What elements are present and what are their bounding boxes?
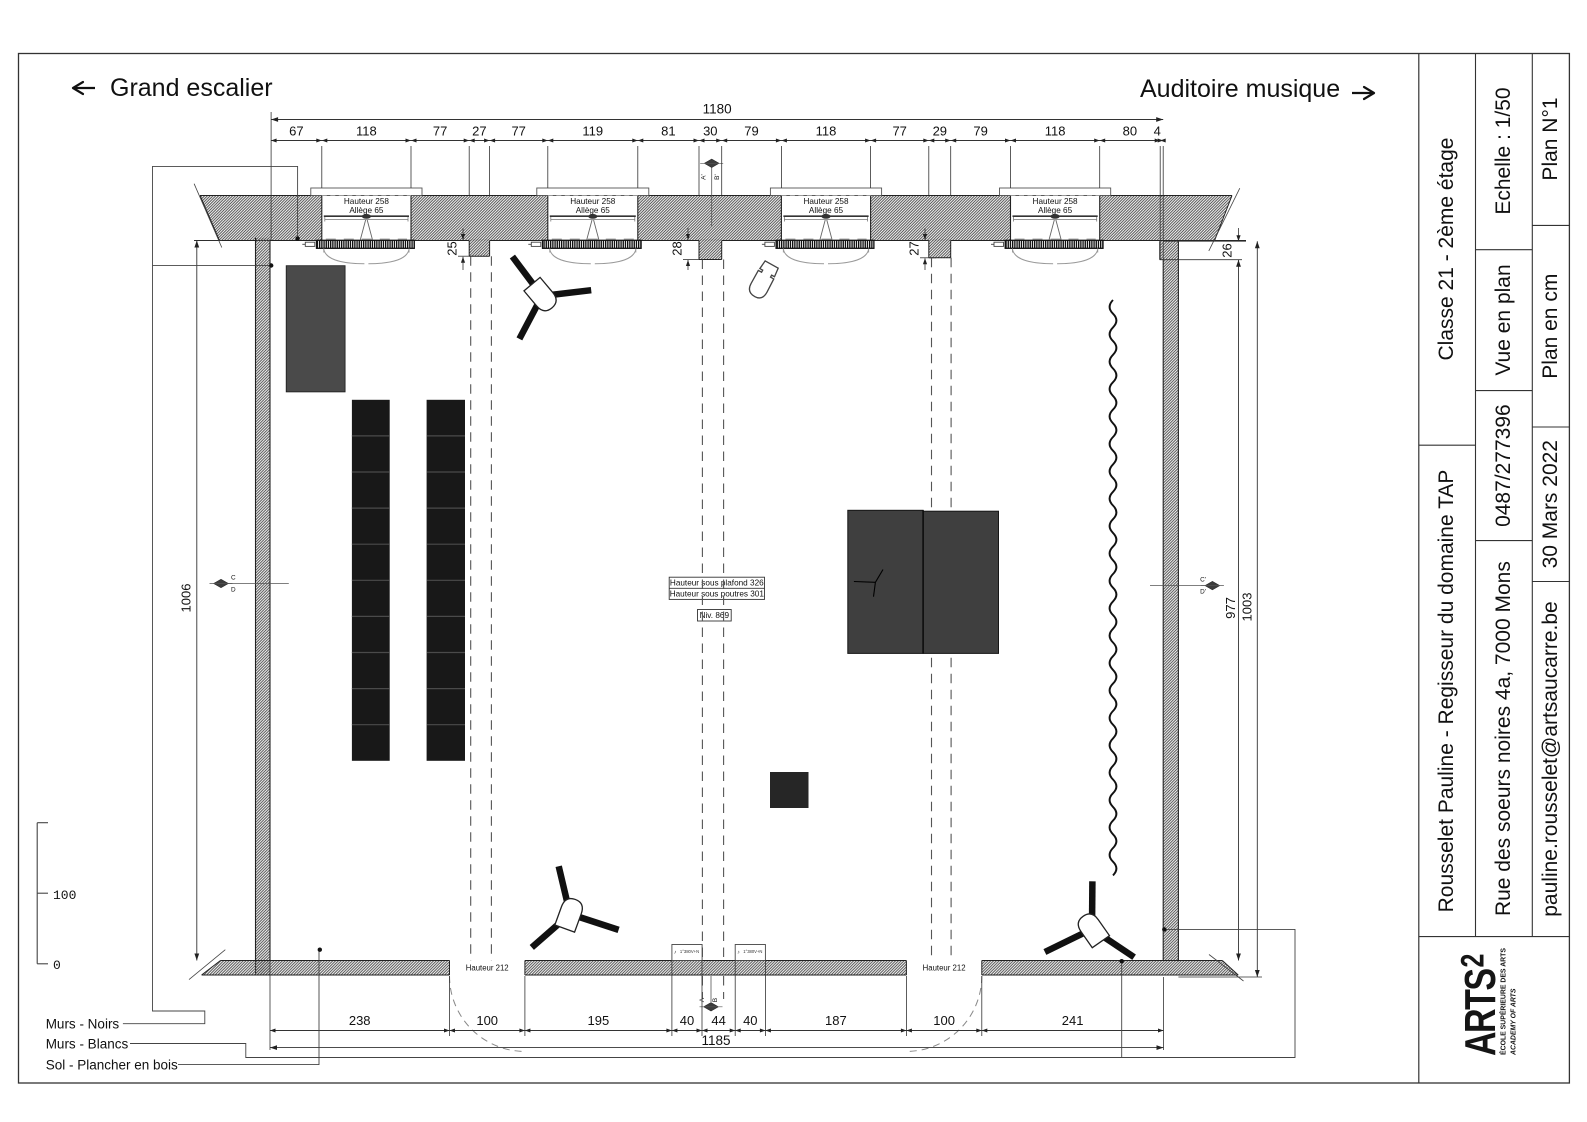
svg-text:Rue des soeurs noires 4a, 7000: Rue des soeurs noires 4a, 7000 Mons: [1492, 561, 1515, 916]
svg-text:Hauteur 212: Hauteur 212: [923, 964, 966, 973]
svg-text:1180: 1180: [703, 102, 732, 117]
svg-text:118: 118: [816, 124, 837, 139]
svg-text:118: 118: [1045, 124, 1066, 139]
svg-text:2: 2: [1456, 954, 1492, 968]
svg-text:Murs - Blancs: Murs - Blancs: [46, 1037, 129, 1052]
svg-text:Rousselet Pauline - Regisseur: Rousselet Pauline - Regisseur du domaine…: [1435, 470, 1458, 913]
svg-text:977: 977: [1223, 597, 1238, 619]
svg-text:ÉCOLE SUPÉRIEURE DES ARTS: ÉCOLE SUPÉRIEURE DES ARTS: [1499, 948, 1508, 1055]
svg-text:1006: 1006: [178, 584, 193, 613]
svg-text:1185: 1185: [701, 1033, 730, 1048]
svg-text:pauline.rousselet@artsaucarre.: pauline.rousselet@artsaucarre.be: [1539, 601, 1562, 917]
svg-text:100: 100: [476, 1013, 498, 1028]
svg-text:Plan en cm: Plan en cm: [1539, 274, 1562, 379]
svg-text:Sol - Plancher en bois: Sol - Plancher en bois: [46, 1058, 178, 1073]
svg-text:77: 77: [892, 124, 906, 139]
svg-text:25: 25: [445, 241, 460, 255]
svg-text:1°380V+N: 1°380V+N: [680, 949, 699, 954]
svg-text:B': B': [714, 174, 721, 180]
svg-text:4: 4: [1154, 124, 1161, 139]
svg-text:Hauteur 258: Hauteur 258: [344, 197, 390, 206]
svg-text:77: 77: [511, 124, 525, 139]
svg-text:80: 80: [1123, 124, 1137, 139]
svg-text:C': C': [1200, 577, 1206, 584]
svg-text:28: 28: [670, 241, 685, 255]
svg-text:30 Mars 2022: 30 Mars 2022: [1539, 440, 1562, 568]
svg-text:238: 238: [349, 1013, 371, 1028]
svg-text:30: 30: [703, 124, 717, 139]
svg-text:79: 79: [973, 124, 987, 139]
svg-text:26: 26: [1220, 243, 1235, 257]
svg-text:ARTS: ARTS: [1457, 969, 1505, 1056]
svg-text:Grand escalier: Grand escalier: [110, 74, 273, 102]
svg-text:40: 40: [743, 1013, 757, 1028]
svg-text:C: C: [231, 575, 236, 582]
svg-text:Vue en plan: Vue en plan: [1492, 264, 1515, 375]
svg-text:ACADEMY OF ARTS: ACADEMY OF ARTS: [1511, 988, 1518, 1056]
svg-text:29: 29: [933, 124, 947, 139]
svg-text:A: A: [699, 997, 706, 1002]
svg-text:Allège 65: Allège 65: [809, 206, 844, 215]
svg-text:Classe 21 - 2ème étage: Classe 21 - 2ème étage: [1435, 138, 1458, 361]
svg-text:Allège 65: Allège 65: [349, 206, 384, 215]
svg-text:27: 27: [472, 124, 486, 139]
svg-text:81: 81: [661, 124, 675, 139]
svg-text:1003: 1003: [1239, 593, 1254, 622]
svg-text:Allège 65: Allège 65: [1038, 206, 1073, 215]
svg-text:Hauteur sous poutres 301: Hauteur sous poutres 301: [670, 589, 765, 598]
svg-text:0487/277396: 0487/277396: [1492, 404, 1515, 527]
svg-text:Auditoire musique: Auditoire musique: [1140, 75, 1340, 103]
svg-text:67: 67: [289, 124, 303, 139]
svg-text:100: 100: [933, 1013, 955, 1028]
svg-text:A': A': [701, 174, 708, 180]
svg-text:241: 241: [1062, 1013, 1084, 1028]
svg-text:0: 0: [53, 958, 61, 973]
svg-text:1°380V+N: 1°380V+N: [743, 949, 762, 954]
svg-text:Plan N°1: Plan N°1: [1539, 97, 1562, 180]
svg-text:Hauteur 212: Hauteur 212: [466, 964, 509, 973]
svg-text:195: 195: [588, 1013, 610, 1028]
svg-text:187: 187: [825, 1013, 847, 1028]
svg-text:27: 27: [907, 241, 922, 255]
svg-text:119: 119: [582, 124, 603, 139]
svg-text:Hauteur 258: Hauteur 258: [803, 197, 849, 206]
svg-text:44: 44: [711, 1013, 725, 1028]
svg-text:Allège 65: Allège 65: [576, 206, 611, 215]
svg-text:Echelle : 1/50: Echelle : 1/50: [1492, 87, 1515, 214]
svg-text:79: 79: [744, 124, 758, 139]
svg-text:Hauteur 258: Hauteur 258: [570, 197, 616, 206]
svg-text:Hauteur sous plafond 326: Hauteur sous plafond 326: [670, 578, 764, 587]
svg-text:Niv. 869: Niv. 869: [700, 611, 730, 620]
svg-text:D': D': [1200, 589, 1206, 596]
svg-text:D: D: [231, 587, 236, 594]
svg-text:B: B: [712, 997, 719, 1002]
svg-text:Murs - Noirs: Murs - Noirs: [46, 1017, 120, 1032]
svg-text:Hauteur 258: Hauteur 258: [1033, 197, 1079, 206]
svg-text:118: 118: [356, 124, 377, 139]
svg-text:40: 40: [680, 1013, 694, 1028]
svg-text:77: 77: [433, 124, 447, 139]
svg-text:100: 100: [53, 888, 76, 903]
